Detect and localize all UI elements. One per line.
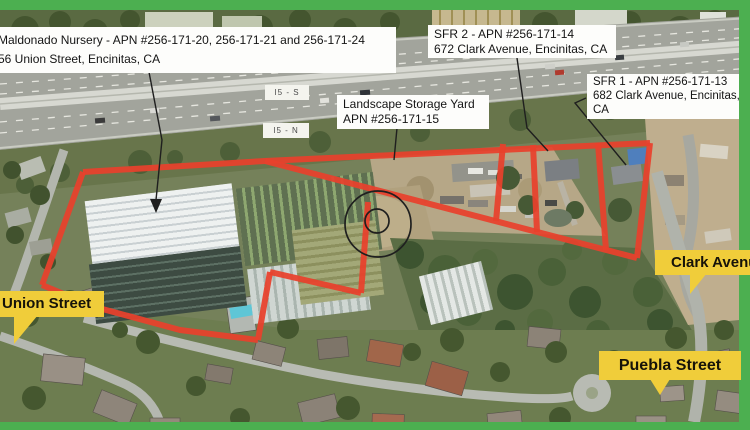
street-label-union-street: Union Street	[0, 291, 104, 317]
highway-sign-i5-south: I5 - S	[265, 85, 309, 100]
street-label-clark-tail	[690, 273, 707, 294]
label-storage-line2: APN #256-171-15	[343, 112, 483, 127]
red-parcel-boundary	[598, 143, 606, 250]
label-maldonado-nursery: Maldonado Nursery - APN #256-171-20, 256…	[0, 27, 396, 73]
red-parcel-boundary	[258, 272, 270, 340]
red-parcel-boundary	[42, 172, 83, 285]
leader-line	[517, 58, 548, 151]
label-storage-line1: Landscape Storage Yard	[343, 97, 483, 112]
annotated-aerial-map: Maldonado Nursery - APN #256-171-20, 256…	[0, 0, 750, 430]
frame-bottom-bar	[0, 422, 750, 430]
label-maldonado-line1: Maldonado Nursery - APN #256-171-20, 256…	[0, 31, 388, 50]
red-parcel-boundary	[83, 143, 650, 172]
red-parcel-boundary	[533, 145, 537, 232]
leader-arrowhead-icon	[150, 199, 162, 213]
label-sfr1: SFR 1 - APN #256-171-13 682 Clark Avenue…	[587, 74, 750, 119]
frame-top-bar	[0, 0, 750, 10]
label-sfr1-line2: 682 Clark Avenue, Encinitas,	[593, 90, 750, 104]
label-sfr2-line1: SFR 2 - APN #256-171-14	[434, 27, 610, 42]
leader-line	[149, 72, 162, 200]
street-label-puebla-street: Puebla Street	[599, 351, 741, 380]
street-label-union-tail	[14, 315, 38, 344]
red-parcel-boundary	[270, 272, 361, 293]
street-label-puebla-tail	[650, 379, 670, 395]
label-sfr2: SFR 2 - APN #256-171-14 672 Clark Avenue…	[428, 25, 616, 58]
street-label-clark-avenue: Clark Avenue	[655, 250, 750, 275]
red-parcel-boundary	[637, 143, 650, 258]
red-parcel-boundary	[265, 161, 637, 258]
red-parcel-boundary	[496, 144, 503, 221]
label-sfr1-line3: CA	[593, 104, 750, 118]
highway-sign-i5-north: I5 - N	[263, 123, 309, 138]
label-sfr1-line1: SFR 1 - APN #256-171-13	[593, 76, 750, 90]
label-landscape-storage-yard: Landscape Storage Yard APN #256-171-15	[337, 95, 489, 129]
label-maldonado-line2: 56 Union Street, Encinitas, CA	[0, 50, 388, 69]
target-circle-outer	[345, 191, 411, 257]
label-sfr2-line2: 672 Clark Avenue, Encinitas, CA	[434, 42, 610, 57]
